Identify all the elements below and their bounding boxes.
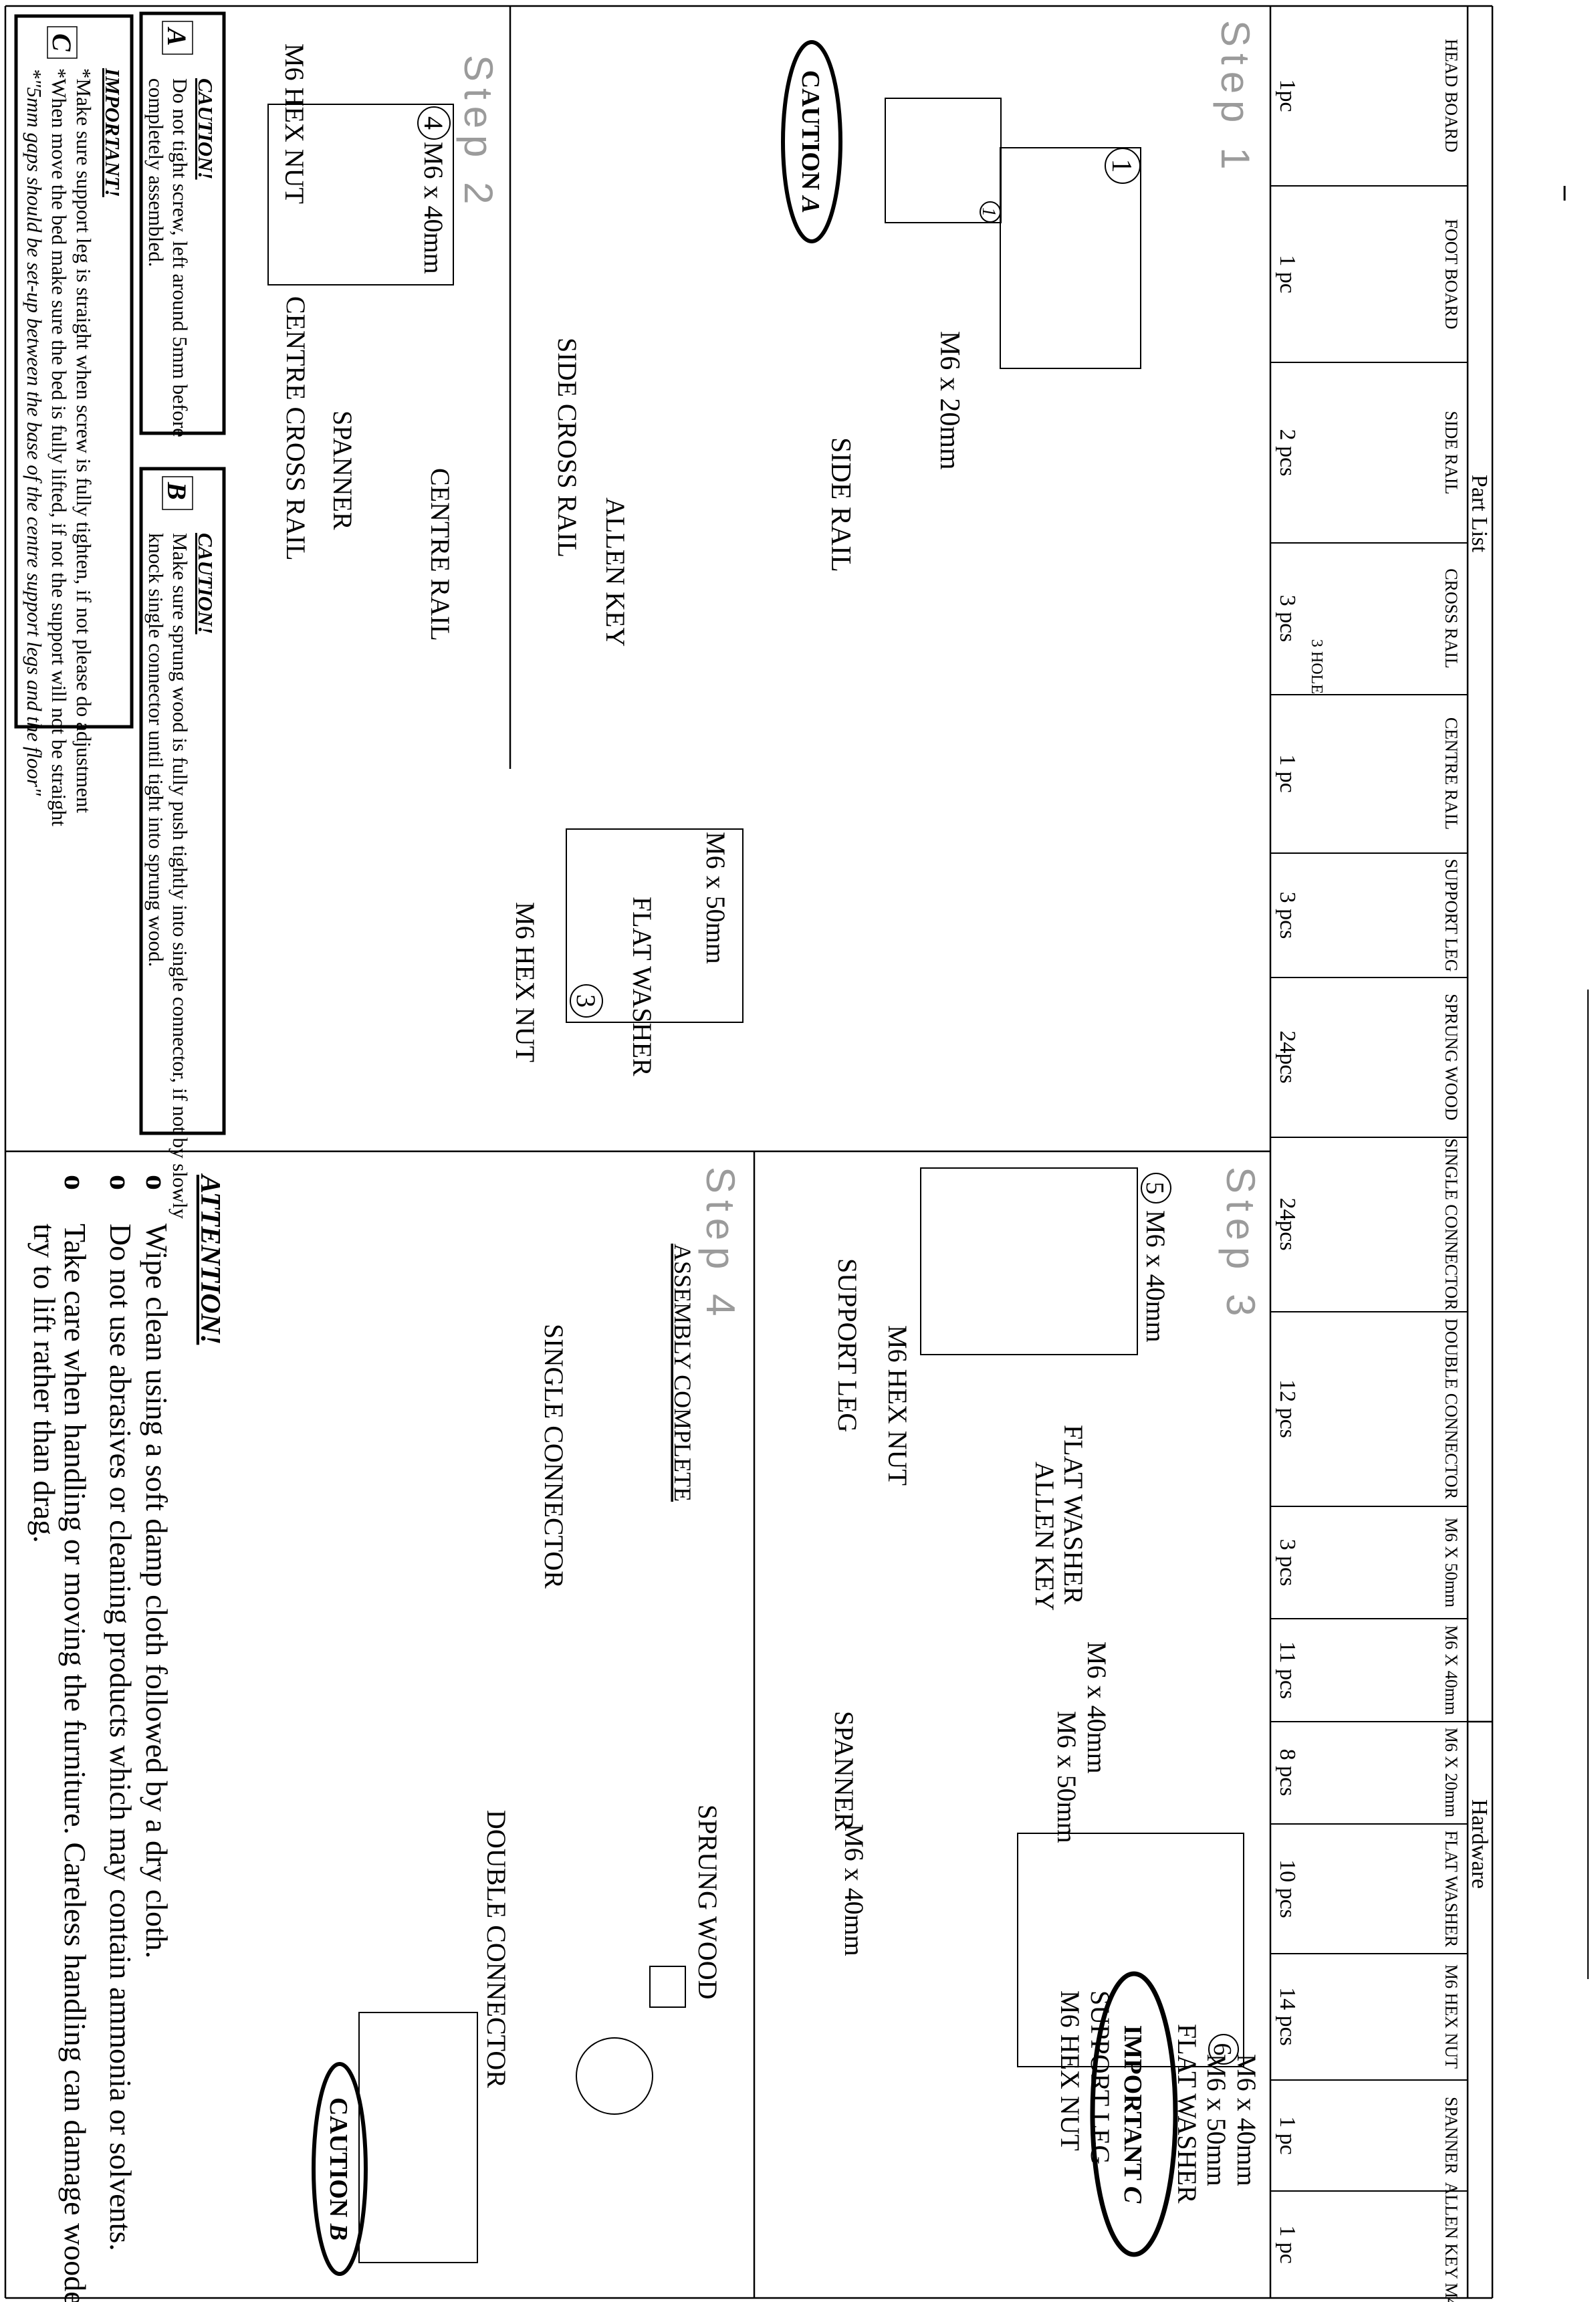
svg-text:24pcs: 24pcs xyxy=(1275,1030,1300,1083)
svg-text:CAUTION A: CAUTION A xyxy=(796,70,824,213)
svg-text:CENTRE CROSS RAIL: CENTRE CROSS RAIL xyxy=(281,296,311,561)
svg-text:M6 HEX NUT: M6 HEX NUT xyxy=(1055,1990,1085,2151)
svg-text:Step 1: Step 1 xyxy=(1213,20,1258,176)
svg-text:FLAT WASHER: FLAT WASHER xyxy=(1172,2024,1202,2204)
svg-text:SUPPORT LEG: SUPPORT LEG xyxy=(832,1258,863,1432)
svg-text:B: B xyxy=(162,481,192,500)
svg-text:3 pcs: 3 pcs xyxy=(1275,595,1300,643)
svg-text:Step 4: Step 4 xyxy=(698,1167,743,1322)
svg-text:ALLEN KEY: ALLEN KEY xyxy=(1030,1462,1060,1611)
svg-text:M6 X 20mm: M6 X 20mm xyxy=(1442,1728,1461,1817)
svg-text:1 pc: 1 pc xyxy=(1275,2225,1300,2264)
svg-text:IMPORTANT C: IMPORTANT C xyxy=(1119,2025,1147,2204)
svg-text:SPANNER: SPANNER xyxy=(829,1711,859,1831)
svg-text:oDo not use abrasives or clean: oDo not use abrasives or cleaning produc… xyxy=(104,1175,138,2251)
svg-text:M6 x 50mm: M6 x 50mm xyxy=(1052,1711,1082,1843)
svg-text:SINGLE CONNECTOR: SINGLE CONNECTOR xyxy=(1442,1138,1461,1310)
svg-text:1: 1 xyxy=(1106,159,1137,173)
svg-text:SPRUNG WOOD: SPRUNG WOOD xyxy=(1442,994,1461,1121)
svg-text:Step 3: Step 3 xyxy=(1218,1167,1263,1322)
svg-text:1pc: 1pc xyxy=(1275,79,1300,112)
svg-text:HEAD BOARD: HEAD BOARD xyxy=(1442,39,1461,152)
svg-text:3 HOLE: 3 HOLE xyxy=(1308,639,1325,694)
svg-text:oTake care when handling or mo: oTake care when handling or moving the f… xyxy=(58,1175,92,2302)
svg-text:M6 HEX NUT: M6 HEX NUT xyxy=(279,43,310,204)
svg-text:1 pc: 1 pc xyxy=(1275,754,1300,793)
svg-text:CENTRE RAIL: CENTRE RAIL xyxy=(1442,717,1461,830)
svg-text:Part List: Part List xyxy=(1467,475,1492,553)
svg-text:ALLEN KEY M4: ALLEN KEY M4 xyxy=(1442,2182,1461,2302)
svg-text:SINGLE CONNECTOR: SINGLE CONNECTOR xyxy=(539,1324,569,1589)
svg-text:Step 2: Step 2 xyxy=(456,55,501,211)
svg-text:3 pcs: 3 pcs xyxy=(1275,1539,1300,1587)
svg-text:M6 x 40mm: M6 x 40mm xyxy=(1232,2054,1262,2186)
svg-text:SPANNER: SPANNER xyxy=(328,411,358,530)
svg-text:*Make sure support leg is stra: *Make sure support leg is straight when … xyxy=(72,68,96,813)
svg-text:SIDE RAIL: SIDE RAIL xyxy=(825,437,856,572)
svg-text:ALLEN KEY: ALLEN KEY xyxy=(600,497,631,647)
svg-text:SPANNER: SPANNER xyxy=(1442,2097,1461,2175)
svg-text:24pcs: 24pcs xyxy=(1275,1197,1300,1250)
svg-text:5: 5 xyxy=(1141,1182,1169,1195)
svg-text:FOOT BOARD: FOOT BOARD xyxy=(1442,219,1461,330)
svg-text:M6 x 50mm: M6 x 50mm xyxy=(701,832,731,964)
svg-text:M6 X 50mm: M6 X 50mm xyxy=(1442,1518,1461,1607)
svg-text:Hardware: Hardware xyxy=(1467,1799,1492,1889)
svg-text:*"5mm gaps should be set-up be: *"5mm gaps should be set-up between the … xyxy=(23,68,46,796)
svg-text:CROSS RAIL: CROSS RAIL xyxy=(1442,568,1461,669)
svg-text:SPRUNG WOOD: SPRUNG WOOD xyxy=(693,1805,723,2000)
svg-text:oWipe clean using a soft damp: oWipe clean using a soft damp cloth foll… xyxy=(140,1175,174,1958)
svg-text:CAUTION!: CAUTION! xyxy=(194,78,217,180)
svg-text:14 pcs: 14 pcs xyxy=(1275,1987,1300,2046)
svg-text:M6 X 40mm: M6 X 40mm xyxy=(1442,1625,1461,1715)
svg-text:M6 x 40mm: M6 x 40mm xyxy=(1082,1641,1112,1774)
svg-text:FLAT WASHER: FLAT WASHER xyxy=(1058,1425,1089,1605)
svg-text:SUPPORT LEG: SUPPORT LEG xyxy=(1085,1990,1115,2164)
svg-text:IMPORTANT!: IMPORTANT! xyxy=(101,68,124,197)
svg-text:M6 HEX NUT: M6 HEX NUT xyxy=(1442,1964,1461,2069)
svg-text:CENTRE RAIL: CENTRE RAIL xyxy=(425,468,455,641)
svg-text:try to lift rather than drag.: try to lift rather than drag. xyxy=(27,1224,62,1543)
svg-text:C: C xyxy=(47,33,77,52)
svg-text:ATTENTION!: ATTENTION! xyxy=(195,1173,225,1345)
svg-text:SUPPORT LEG: SUPPORT LEG xyxy=(1442,858,1461,971)
svg-text:Make sure sprung wood is fully: Make sure sprung wood is fully push tigh… xyxy=(168,533,192,1219)
svg-text:M6 x 50mm: M6 x 50mm xyxy=(1202,2054,1232,2186)
svg-text:CAUTION!: CAUTION! xyxy=(194,533,217,635)
svg-text:3: 3 xyxy=(571,994,601,1008)
svg-text:FLAT WASHER: FLAT WASHER xyxy=(1442,1831,1461,1948)
svg-text:Do not tight screw, left arou: Do not tight screw, left around 5mm befo… xyxy=(168,78,192,437)
svg-text:*When move the bed make sure t: *When move the bed make sure the bed is … xyxy=(47,68,71,826)
svg-text:SIDE CROSS RAIL: SIDE CROSS RAIL xyxy=(552,338,582,558)
svg-text:12 pcs: 12 pcs xyxy=(1275,1379,1300,1438)
svg-text:11 pcs: 11 pcs xyxy=(1275,1641,1300,1700)
svg-text:FLAT WASHER: FLAT WASHER xyxy=(627,897,657,1076)
svg-text:10 pcs: 10 pcs xyxy=(1275,1859,1300,1918)
svg-text:CAUTION B: CAUTION B xyxy=(324,2097,352,2240)
svg-text:1 pc: 1 pc xyxy=(1275,2116,1300,2155)
svg-text:M6 x 40mm: M6 x 40mm xyxy=(839,1824,869,1956)
svg-text:DOUBLE CONNECTOR: DOUBLE CONNECTOR xyxy=(481,1810,511,2088)
svg-text:M6 x 40mm: M6 x 40mm xyxy=(1141,1210,1171,1343)
svg-text:1: 1 xyxy=(978,207,999,217)
svg-text:A: A xyxy=(162,26,192,46)
svg-text:M6 x 40mm: M6 x 40mm xyxy=(419,142,449,274)
svg-text:knock single connector until t: knock single connector until tight into … xyxy=(144,533,168,967)
svg-text:completely assembled.: completely assembled. xyxy=(144,78,168,267)
svg-text:SIDE RAIL: SIDE RAIL xyxy=(1442,411,1461,495)
svg-text:4: 4 xyxy=(419,116,449,130)
svg-text:M6 x 20mm: M6 x 20mm xyxy=(934,331,965,470)
svg-text:1 pc: 1 pc xyxy=(1275,255,1300,294)
svg-text:ASSEMBLY COMPLETE: ASSEMBLY COMPLETE xyxy=(669,1244,696,1502)
svg-text:2 pcs: 2 pcs xyxy=(1275,429,1300,477)
svg-text:DOUBLE CONNECTOR: DOUBLE CONNECTOR xyxy=(1442,1318,1461,1500)
svg-text:8 pcs: 8 pcs xyxy=(1275,1749,1300,1797)
svg-text:6: 6 xyxy=(1208,2043,1236,2056)
svg-text:M6 HEX NUT: M6 HEX NUT xyxy=(883,1325,913,1486)
svg-text:3 pcs: 3 pcs xyxy=(1275,892,1300,939)
svg-text:M6 HEX NUT: M6 HEX NUT xyxy=(510,902,540,1062)
